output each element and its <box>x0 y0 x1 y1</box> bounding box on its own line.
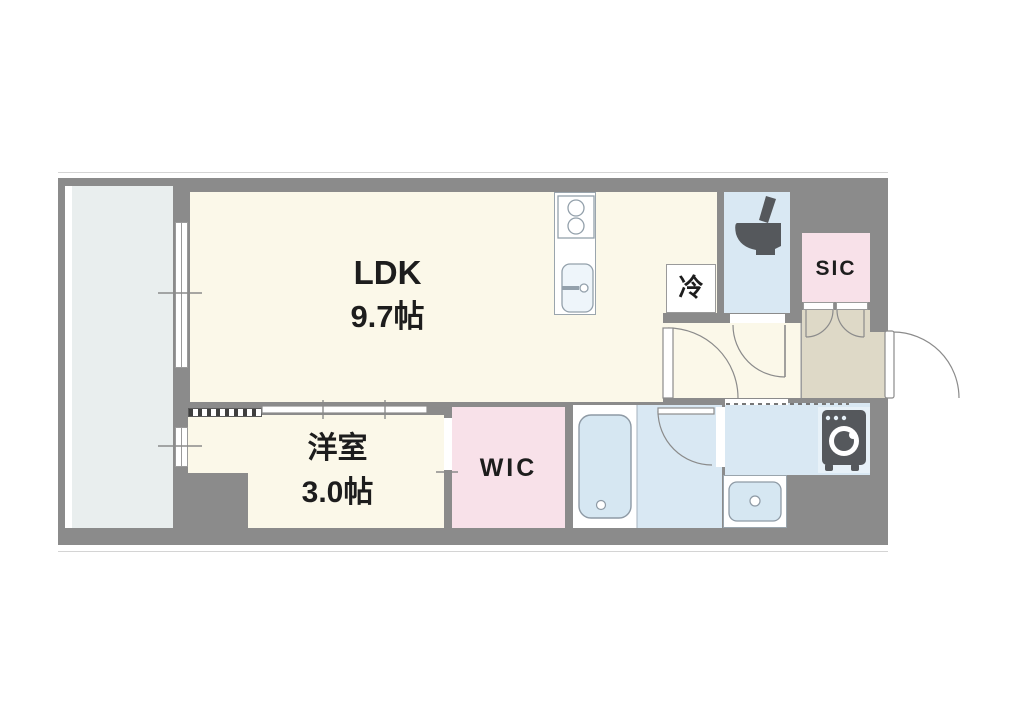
sic-label: SIC <box>802 258 870 279</box>
room-toilet <box>724 192 790 313</box>
ldk-size-label: 9.7帖 <box>300 301 475 332</box>
room-bathroom <box>573 405 637 528</box>
balcony <box>72 186 173 528</box>
room-bath-floor <box>637 405 722 528</box>
hatch-partition <box>188 408 262 417</box>
toilet-door-opening <box>730 314 785 323</box>
bath-door-opening <box>716 407 725 467</box>
western-room-label: 洋室 <box>265 434 410 464</box>
washing-machine-pad <box>818 407 870 473</box>
plan-outline-top <box>58 172 888 173</box>
wall-patch-entrance <box>870 310 888 332</box>
plan-outline-bottom <box>58 551 888 552</box>
entrance-door <box>885 331 959 398</box>
window-ldk <box>175 222 188 368</box>
wic-door-opening <box>444 418 452 470</box>
balcony-railing <box>65 186 72 528</box>
room-hall <box>663 323 801 398</box>
western-room-size-label: 3.0帖 <box>265 478 410 508</box>
window-western-room <box>175 427 188 467</box>
kitchen-unit <box>554 192 596 315</box>
washbasin-unit <box>723 475 787 528</box>
washroom-opening <box>725 399 788 405</box>
refrigerator-label: 冷 <box>666 276 716 301</box>
sic-door-track-right <box>836 302 868 310</box>
sic-door-track-left <box>803 302 834 310</box>
floor-plan: LDK 9.7帖 洋室 3.0帖 WIC SIC 冷 <box>0 0 1024 724</box>
room-ldk-upper <box>190 192 717 313</box>
ldk-label: LDK <box>300 256 475 289</box>
wic-label: WIC <box>452 456 565 481</box>
